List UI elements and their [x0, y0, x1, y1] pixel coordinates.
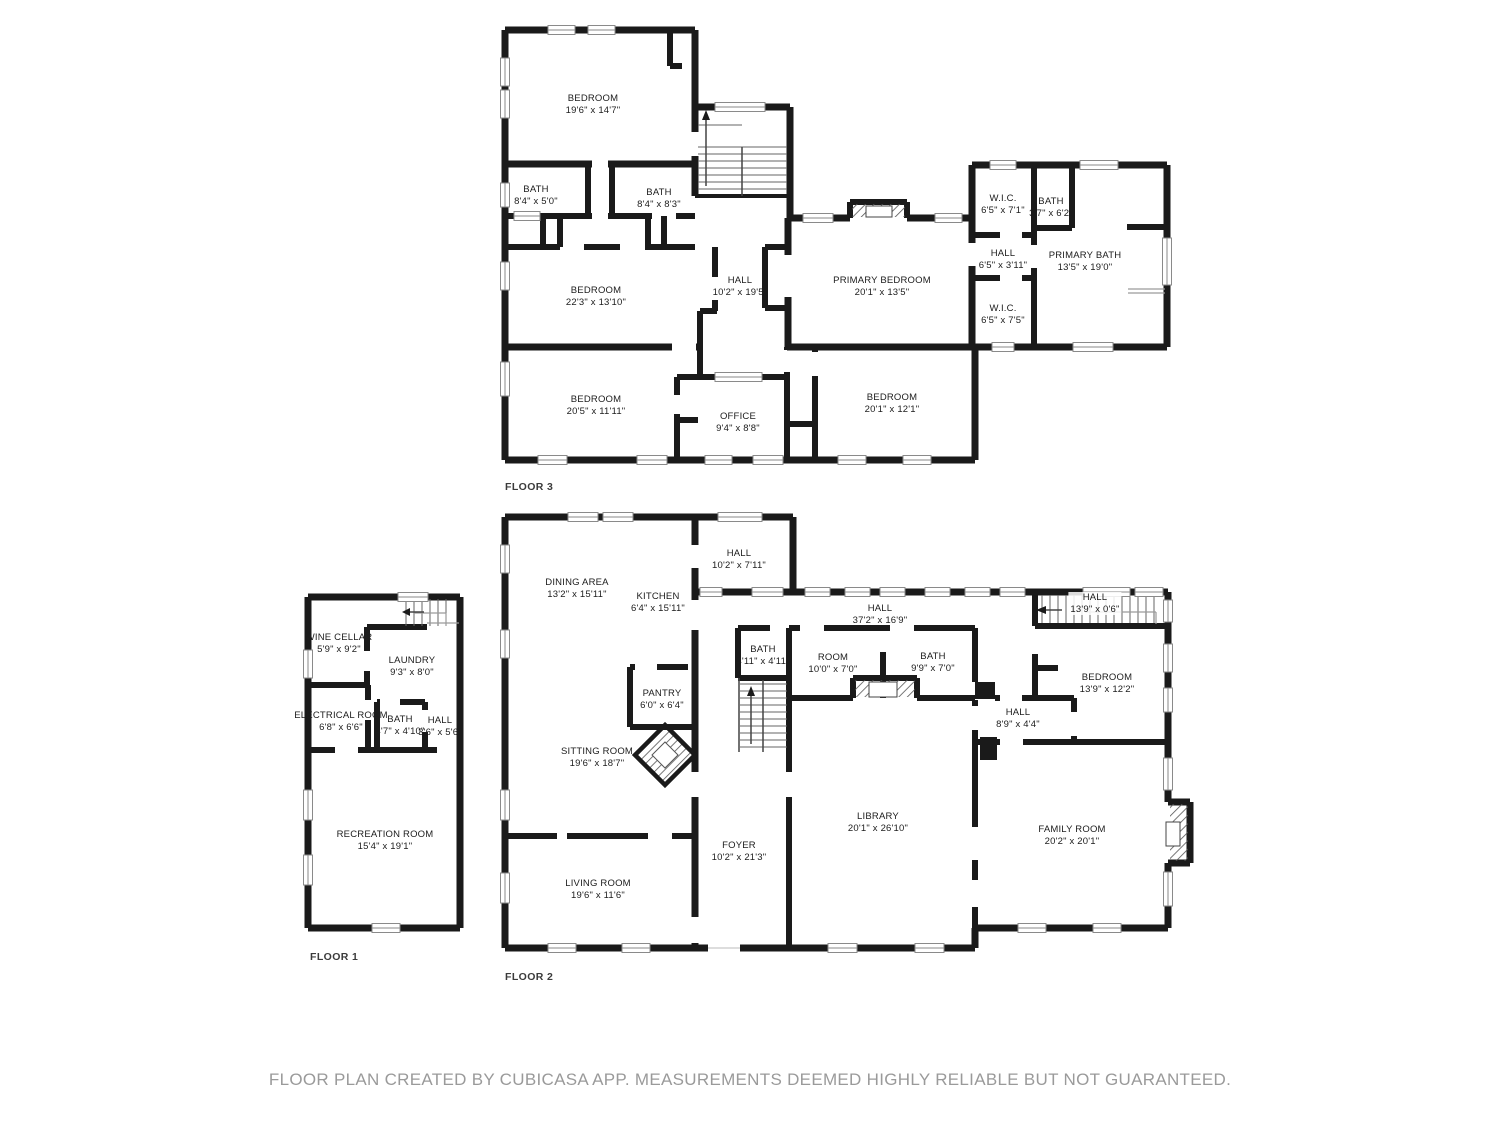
room-label-pantry: PANTRY6'0" x 6'4"	[640, 688, 684, 711]
floor2-foyer-staircase	[739, 678, 787, 752]
room-label-primary-bath: PRIMARY BATH13'5" x 19'0"	[1049, 250, 1122, 273]
floorplan-canvas: BEDROOM19'6" x 14'7" BATH8'4" x 5'0" BAT…	[0, 0, 1500, 1125]
room-label-hall-139-06: HALL13'9" x 0'6"	[1068, 592, 1121, 615]
floor3-staircase	[698, 110, 787, 196]
room-label-bedroom-223: BEDROOM22'3" x 13'10"	[566, 285, 626, 308]
room-label-wic-71: W.I.C.6'5" x 7'1"	[981, 193, 1025, 216]
floor2-room-firebox	[869, 682, 897, 697]
floor2-family-fireplace	[1166, 802, 1190, 863]
room-label-recreation-room: RECREATION ROOM15'4" x 19'1"	[337, 829, 434, 852]
room-label-library: LIBRARY20'1" x 26'10"	[848, 811, 908, 834]
floor2-chase-2	[980, 737, 997, 760]
room-label-sitting-room: SITTING ROOM19'6" x 18'7"	[561, 746, 633, 769]
room-label-bedroom-139: BEDROOM13'9" x 12'2"	[1080, 672, 1135, 695]
room-label-wine-cellar: WINE CELLAR5'9" x 9'2"	[306, 632, 373, 655]
floor1-label: FLOOR 1	[310, 951, 358, 963]
room-label-living-room: LIVING ROOM19'6" x 11'6"	[565, 878, 631, 901]
room-label-wic-75: W.I.C.6'5" x 7'5"	[981, 303, 1025, 326]
room-label-primary-bedroom: PRIMARY BEDROOM20'1" x 13'5"	[833, 275, 931, 298]
room-label-hall-102-711: HALL10'2" x 7'11"	[712, 548, 766, 571]
room-label-foyer: FOYER10'2" x 21'3"	[712, 840, 767, 863]
room-label-laundry: LAUNDRY9'3" x 8'0"	[389, 655, 436, 678]
floor3-label: FLOOR 3	[505, 481, 553, 493]
room-label-bath-99: BATH9'9" x 7'0"	[911, 651, 955, 674]
room-label-room-100: ROOM10'0" x 7'0"	[808, 652, 857, 675]
room-label-dining-area: DINING AREA13'2" x 15'11"	[545, 577, 608, 600]
floor2-sitting-fireplace	[635, 725, 695, 785]
room-label-kitchen: KITCHEN6'4" x 15'11"	[631, 591, 685, 614]
disclaimer-text: FLOOR PLAN CREATED BY CUBICASA APP. MEAS…	[269, 1070, 1231, 1090]
room-label-hall-89: HALL8'9" x 4'4"	[996, 707, 1040, 730]
room-label-bath-84-83: BATH8'4" x 8'3"	[637, 187, 681, 210]
room-label-hall-f1: HALL3'6" x 5'6"	[418, 715, 462, 738]
room-label-family-room: FAMILY ROOM20'2" x 20'1"	[1038, 824, 1105, 847]
room-label-bath-411: BATH4'11" x 4'11"	[736, 644, 789, 667]
floor3-halfwall	[1128, 289, 1165, 293]
room-label-bedroom-205: BEDROOM20'5" x 11'11"	[567, 394, 626, 417]
floor1-staircase	[402, 599, 459, 626]
room-label-bedroom-201: BEDROOM20'1" x 12'1"	[865, 392, 920, 415]
floor2-label: FLOOR 2	[505, 971, 553, 983]
room-label-hall-f3: HALL10'2" x 19'5"	[713, 275, 768, 298]
room-label-office: OFFICE9'4" x 8'8"	[716, 411, 760, 434]
room-label-bath-37: BATH3'7" x 6'2"	[1029, 196, 1073, 219]
floor3-firebox	[866, 206, 892, 217]
room-label-hall-372: HALL37'2" x 16'9"	[853, 603, 908, 626]
room-label-hall-65: HALL6'5" x 3'11"	[979, 248, 1028, 271]
room-label-bath-84-50: BATH8'4" x 5'0"	[514, 184, 558, 207]
room-label-electrical-room: ELECTRICAL ROOM6'8" x 6'6"	[294, 710, 387, 733]
room-label-bedroom-196: BEDROOM19'6" x 14'7"	[566, 93, 621, 116]
floor2-chase-1	[975, 682, 995, 699]
